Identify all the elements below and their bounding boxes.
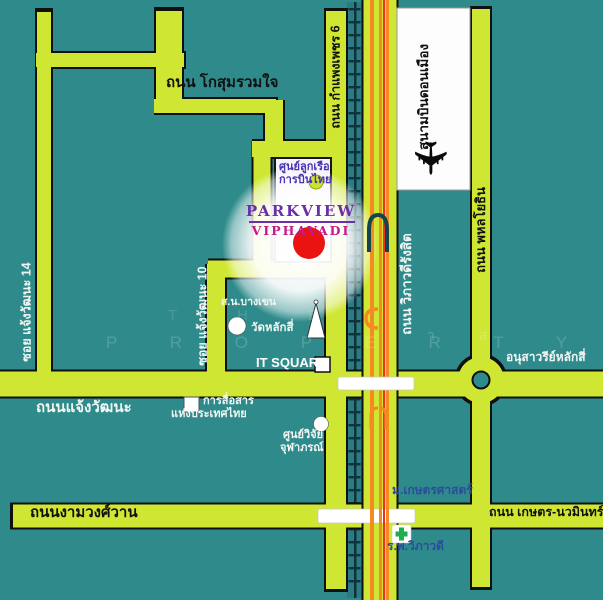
kasetsart-university-label: ม.เกษตรศาสตร์ [392,484,473,497]
chaengwatthana-overpass [338,377,414,390]
road-label-ngamwongwan: ถนนงามวงศ์วาน [30,505,138,521]
chulabhorn-label-line2: จุฬาภรณ์ [280,443,324,455]
project-subname-label: VIPHAVADI [252,224,351,237]
vibhavadi-hospital-label: ร.พ.วิภาวดี [387,540,444,553]
cat-telecom-label-line2: แห่งประเทศไทย [171,409,247,421]
road-label-kosum: ถนน โกสุมรวมใจ [166,75,278,91]
wat-lak-si-label: วัดหลักสี่ [251,322,294,334]
police-station-label: ส.น.บางเขน [221,297,276,308]
ngamwongwan-overpass [318,509,415,523]
crew-center-label-line1: ศูนย์ลูกเรือ [279,162,330,174]
airplane-icon: ✈ [406,139,454,178]
crew-center-label-line2: การบินไทย [279,175,331,187]
it-square-label: IT SQUARE [256,356,327,370]
road-label-vibhavadi-rangsit: ถนน วิภาวดีรังสิต [400,233,414,335]
watermark-fragment: า ส [427,325,507,347]
lak-si-monument-label: อนุสาวรีย์หลักสี่ [506,351,586,364]
chulabhorn-label-line1: ศูนย์วิจัย [283,430,323,442]
wat-lak-si-chedi-top [314,300,318,304]
highway-stripes [370,0,389,600]
location-map: T H E P R O P E R T Y า ส ถนน โกสุมรวมใจ… [0,0,603,600]
project-name-label: PARKVIEW [246,204,356,220]
road-label-phahonyothin: ถนน พหลโยธิน [474,187,488,273]
road-label-soi-chaengwatthana-14: ซอย แจ้งวัฒนะ 14 [20,262,33,361]
road-label-kamphaeng-phet-6: ถนน กำแพงเพชร 6 [329,25,342,128]
cat-telecom-label-line1: การสื่อสาร [203,396,254,408]
airport-label: สนามบินดอนเมือง [417,44,431,150]
road-label-chaengwatthana: ถนนแจ้งวัฒนะ [36,400,132,416]
road-label-kaset-nawamin: ถนน เกษตร-นวมินทร์ [489,506,603,519]
road-label-soi-chaengwatthana-10: ซอย แจ้งวัฒนะ 10 [196,266,209,365]
